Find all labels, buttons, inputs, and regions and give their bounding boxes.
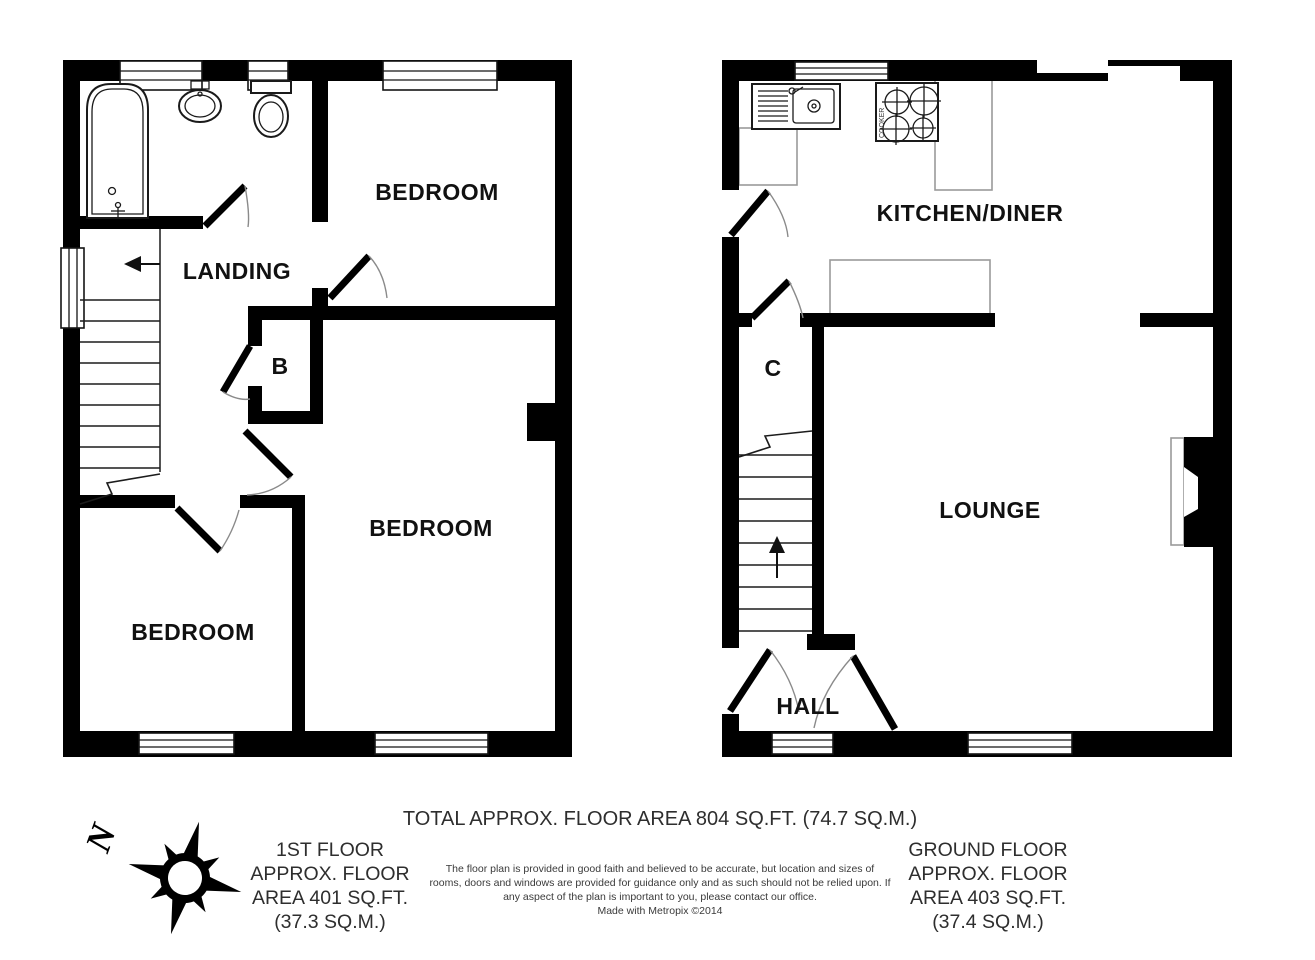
ground-floor-area-line: (37.4 SQ.M.) — [932, 911, 1044, 933]
window — [795, 62, 888, 80]
door — [752, 281, 803, 318]
first-floor-area-line: 1ST FLOOR — [276, 839, 384, 861]
room-label-cupboard-c: C — [764, 355, 781, 381]
window — [375, 733, 488, 754]
first-floor-area-line: (37.3 SQ.M.) — [274, 911, 386, 933]
stairs-ground-floor — [739, 431, 812, 631]
first-floor-area-line: APPROX. FLOOR — [250, 863, 409, 885]
total-area-text: TOTAL APPROX. FLOOR AREA 804 SQ.FT. (74.… — [403, 808, 917, 830]
disclaimer-line: Made with Metropix ©2014 — [597, 905, 722, 917]
chimney-breast-first-floor — [527, 403, 555, 441]
floorplan-page: BEDROOM LANDING B BEDROOM BEDROOM — [0, 0, 1315, 960]
cooker-label: COOKER — [879, 108, 886, 138]
room-label-lounge: LOUNGE — [939, 497, 1040, 523]
window — [772, 733, 833, 754]
first-floor-area-line: AREA 401 SQ.FT. — [252, 887, 408, 909]
ground-floor-area-block: GROUND FLOOR APPROX. FLOOR AREA 403 SQ.F… — [908, 839, 1067, 933]
door — [731, 191, 788, 237]
window — [968, 733, 1072, 754]
room-label-hall: HALL — [776, 693, 839, 719]
kitchen-island — [830, 260, 990, 315]
door — [245, 431, 291, 495]
room-label-kitchen-diner: KITCHEN/DINER — [877, 200, 1064, 226]
window — [61, 248, 84, 328]
ground-floor-area-line: AREA 403 SQ.FT. — [910, 887, 1066, 909]
room-label-landing: LANDING — [183, 258, 291, 284]
door — [205, 186, 249, 227]
door — [177, 508, 239, 551]
disclaimer-block: The floor plan is provided in good faith… — [429, 863, 890, 917]
toilet-icon — [251, 81, 291, 137]
compass-north-label: N — [77, 817, 125, 858]
room-label-bedroom-bottom: BEDROOM — [131, 619, 255, 645]
sink-icon — [752, 84, 840, 129]
door — [223, 346, 250, 399]
first-floor-plan: BEDROOM LANDING B BEDROOM BEDROOM — [61, 60, 572, 757]
hob-icon: COOKER — [876, 83, 941, 145]
footer-texts: TOTAL APPROX. FLOOR AREA 804 SQ.FT. (74.… — [250, 808, 1067, 933]
ground-floor-area-line: GROUND FLOOR — [908, 839, 1067, 861]
stairs-first-floor — [80, 229, 160, 504]
disclaimer-line: rooms, doors and windows are provided fo… — [429, 877, 890, 889]
window — [139, 733, 234, 754]
ground-floor-area-line: APPROX. FLOOR — [908, 863, 1067, 885]
stairs-direction-arrow-first — [124, 256, 160, 272]
fireplace — [1171, 437, 1213, 547]
bath-icon — [87, 84, 148, 218]
compass-rose-icon — [115, 808, 256, 949]
room-label-cupboard-b: B — [271, 353, 288, 379]
ground-floor-interior-walls — [738, 313, 1213, 650]
door — [330, 256, 387, 298]
ground-floor-plan: COOKER KITCHEN/DINER C — [722, 60, 1232, 757]
disclaimer-line: any aspect of the plan is important to y… — [503, 891, 817, 903]
room-label-bedroom-top: BEDROOM — [375, 179, 499, 205]
first-floor-area-block: 1ST FLOOR APPROX. FLOOR AREA 401 SQ.FT. … — [250, 839, 409, 933]
window — [383, 61, 497, 90]
room-label-bedroom-middle: BEDROOM — [369, 515, 493, 541]
disclaimer-line: The floor plan is provided in good faith… — [446, 863, 875, 875]
floorplan-canvas: BEDROOM LANDING B BEDROOM BEDROOM — [0, 0, 1315, 960]
